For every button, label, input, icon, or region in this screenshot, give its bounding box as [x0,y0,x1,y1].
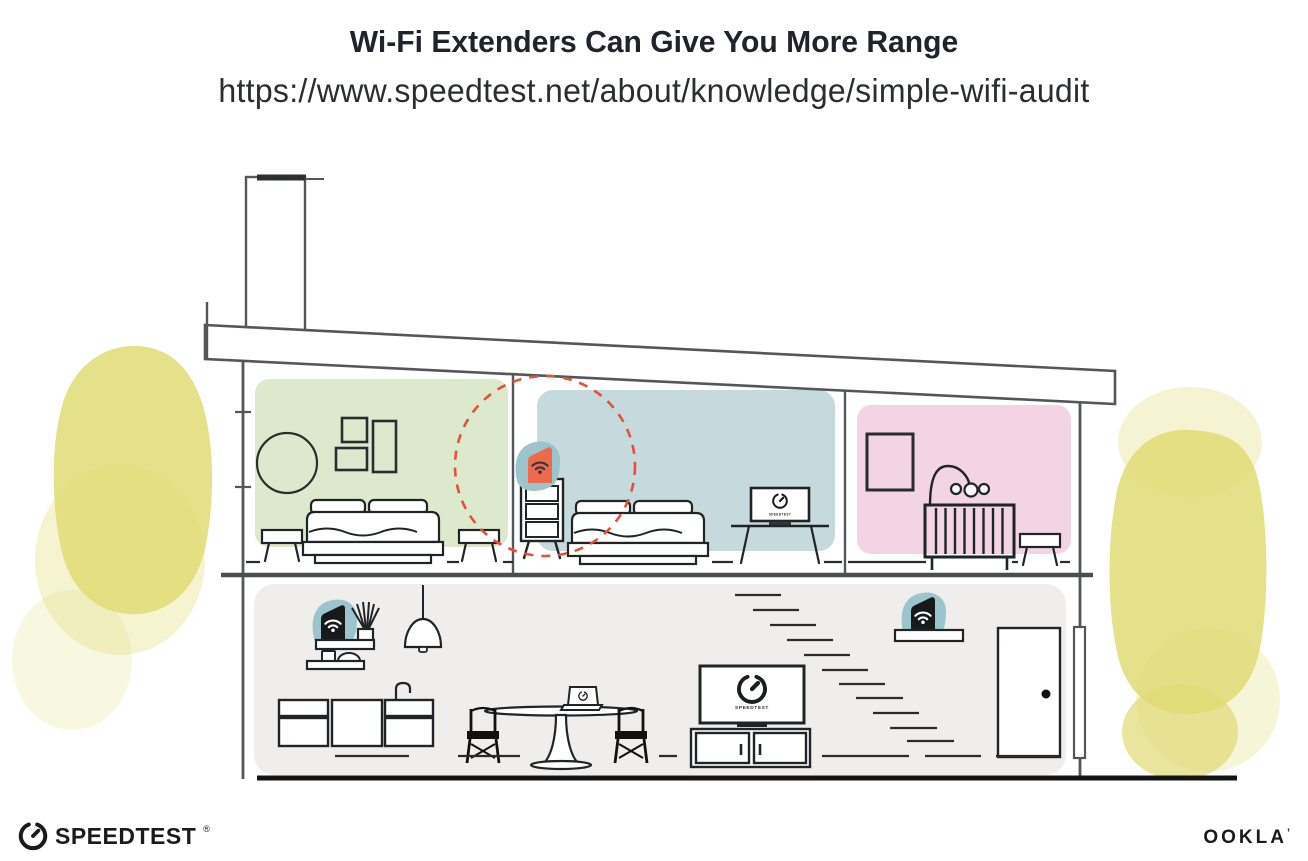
registered-mark: ® [203,824,210,834]
trademark-tick: ’ [1287,827,1290,839]
infographic-page: Wi-Fi Extenders Can Give You More Range … [0,0,1308,861]
speedtest-wordmark: SPEEDTEST [55,823,196,850]
bed [303,500,443,563]
wall-shelf [316,640,374,649]
wall-trim [1074,627,1085,758]
wall-shelf [895,630,963,641]
wall-shelf [307,661,364,669]
page-title: Wi-Fi Extenders Can Give You More Range [20,24,1289,60]
foliage-left [12,346,212,730]
chimney-cap [257,175,306,181]
living-tv-label: SPEEDTEST [735,705,769,711]
front-door [998,628,1060,757]
header: Wi-Fi Extenders Can Give You More Range … [0,0,1308,110]
chimney [246,175,324,333]
door-knob [1042,690,1051,699]
ookla-wordmark: OOKLA [1203,827,1287,848]
bedroom-tv-label: SPEEDTEST [769,513,792,517]
tv-base [769,522,791,526]
cup [322,651,335,661]
media-console [691,729,810,767]
bowl [338,653,360,661]
foliage-right [1110,387,1280,780]
wifi-extender-upstairs [516,442,560,491]
living-room-tv: SPEEDTEST [691,666,810,767]
house-cross-section-illustration: SPEEDTEST [0,0,1308,861]
source-url: https://www.speedtest.net/about/knowledg… [20,72,1289,110]
speedtest-gauge-icon [18,821,48,851]
footer: SPEEDTEST® OOKLA’ [0,813,1308,853]
ookla-logo: OOKLA’ [1203,827,1290,849]
bed [568,501,708,564]
speedtest-logo: SPEEDTEST® [18,821,210,851]
